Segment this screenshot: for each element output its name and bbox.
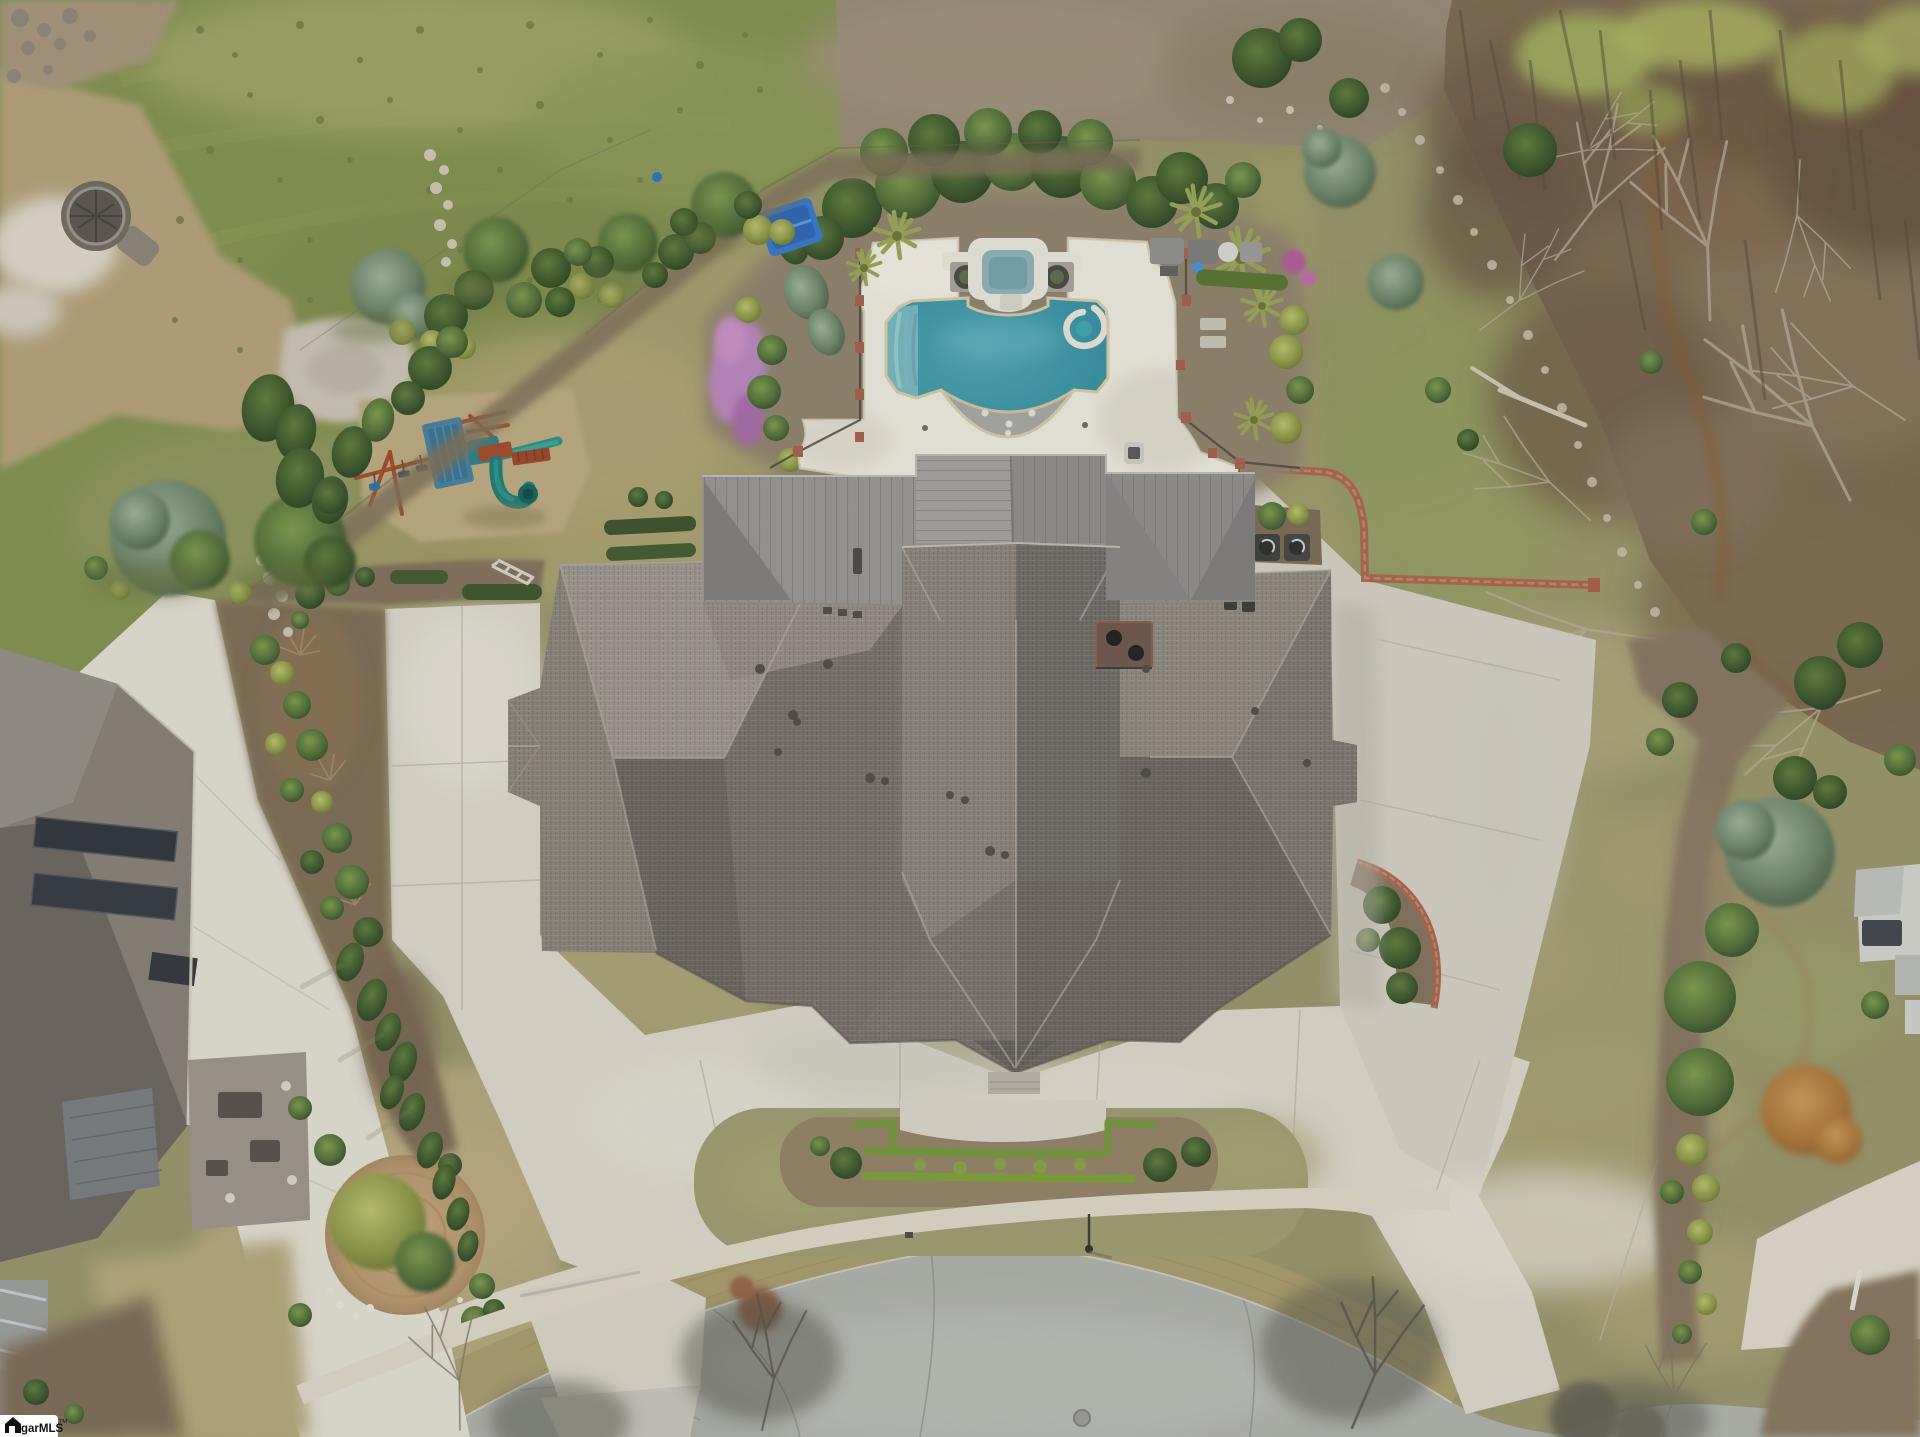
svg-text:TM: TM — [59, 1419, 67, 1425]
svg-text:garMLS: garMLS — [21, 1423, 64, 1435]
